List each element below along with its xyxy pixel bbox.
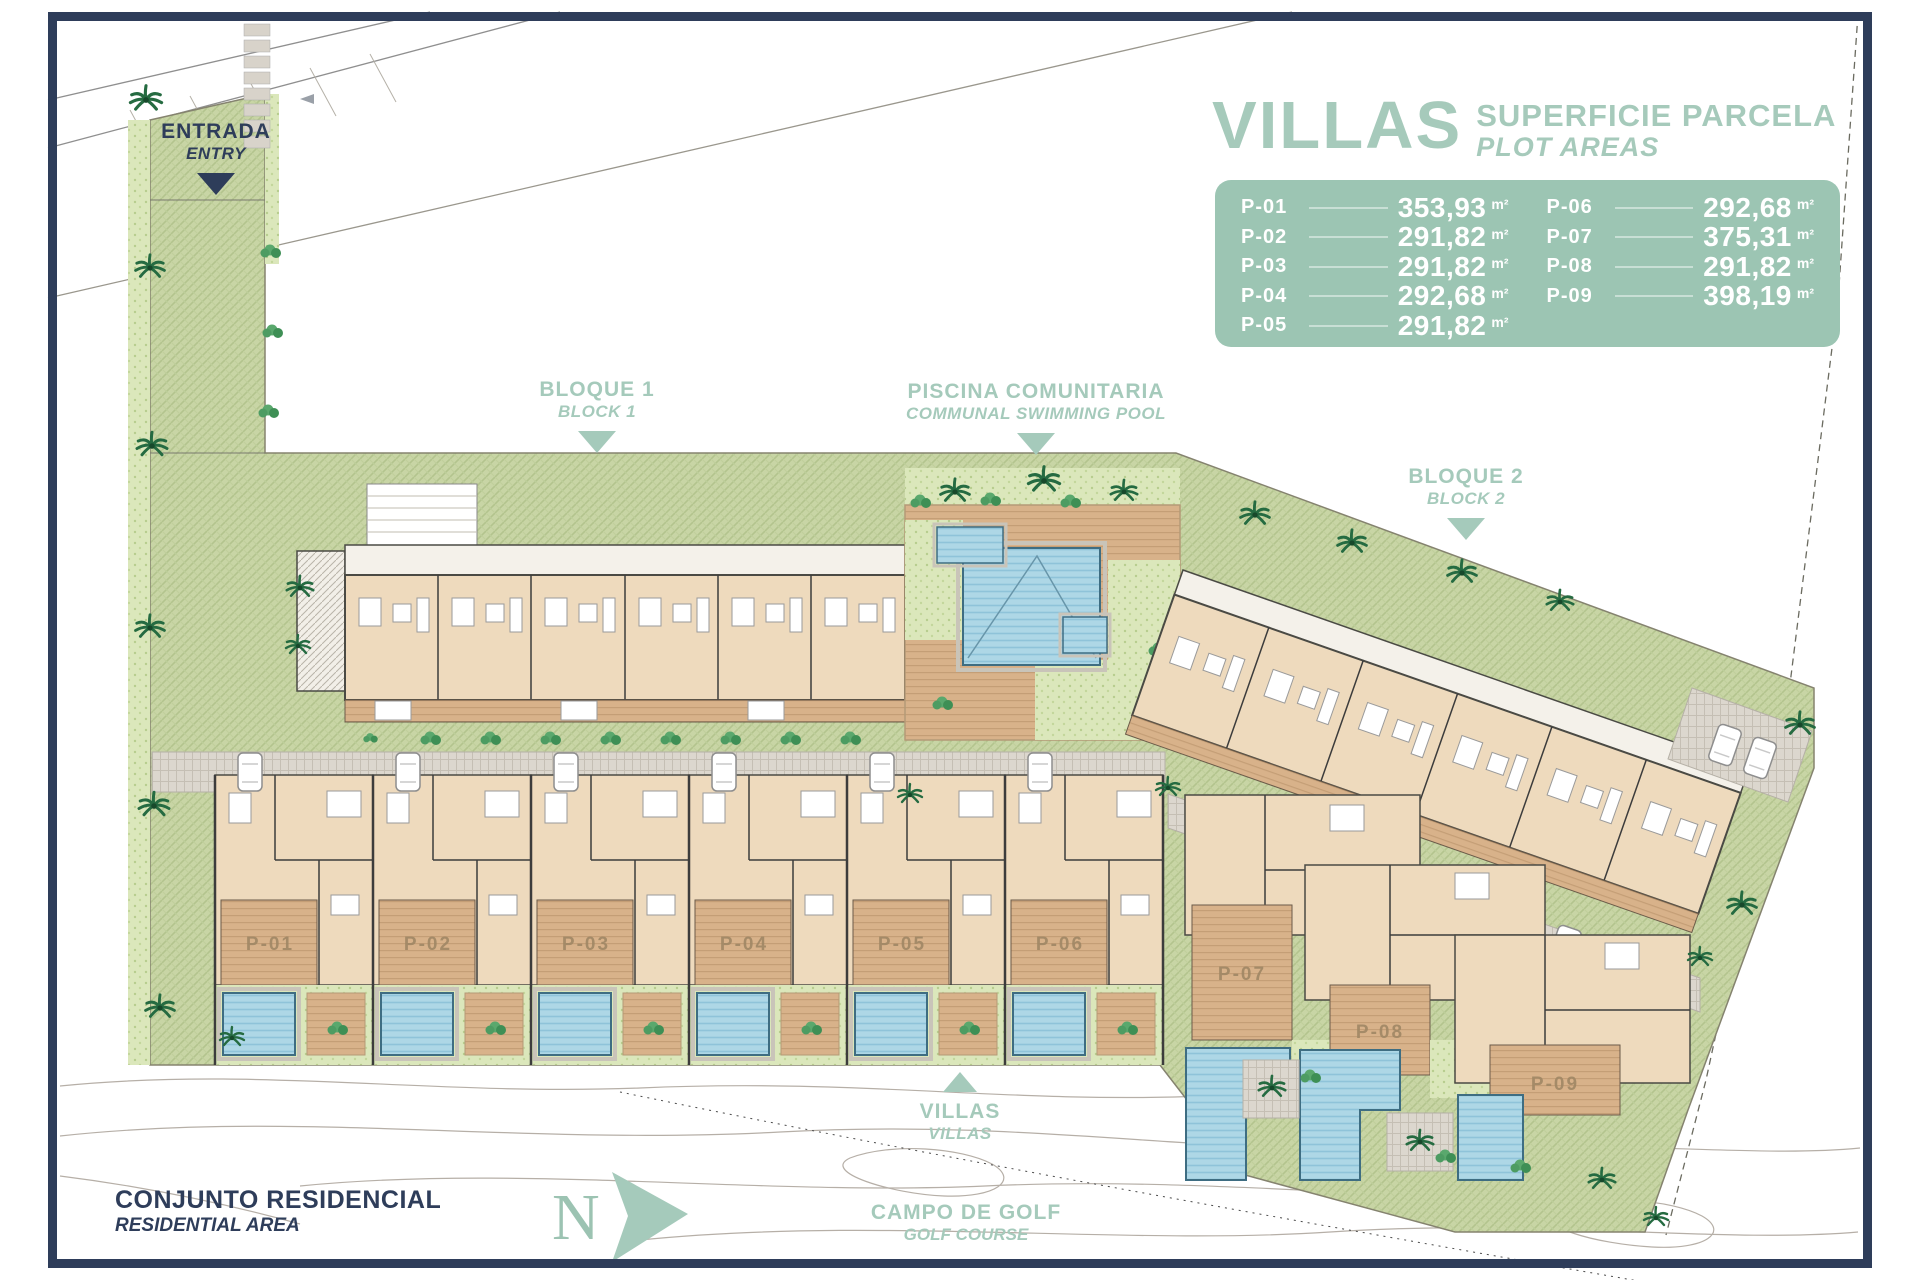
pool-callout: PISCINA COMUNITARIA COMMUNAL SWIMMING PO… [886, 380, 1186, 455]
plot-area-value: 291,82 [1398, 251, 1487, 283]
perimeter-road [48, 12, 560, 158]
plot-areas-column-1: P-01 353,93 m² P-02 291,82 m² P-03 291,8… [1241, 193, 1509, 337]
plot-area-value: 292,68 [1398, 280, 1487, 312]
villas-callout: VILLAS VILLAS [893, 1072, 1027, 1143]
plot-row: P-03 291,82 m² [1241, 252, 1509, 282]
plot-area-value: 291,82 [1398, 221, 1487, 253]
leader-line [1615, 266, 1694, 268]
plot-area-unit: m² [1491, 314, 1508, 330]
villa-unit [1005, 753, 1163, 1065]
plot-id: P-01 [1241, 196, 1299, 219]
entry-callout: ENTRADA ENTRY [150, 120, 282, 195]
golf-label-en: GOLF COURSE [866, 1225, 1066, 1245]
legend-subtitle-en: PLOT AREAS [1476, 133, 1836, 161]
villa-unit [847, 753, 1005, 1065]
plot-area-value: 375,31 [1703, 221, 1792, 253]
plot-area-unit: m² [1797, 226, 1814, 242]
plot-area-value: 292,68 [1703, 192, 1792, 224]
leader-line [1615, 207, 1694, 209]
plot-area-unit: m² [1491, 255, 1508, 271]
plot-label: P-07 [1218, 964, 1266, 985]
plot-row: P-01 353,93 m² [1241, 193, 1509, 223]
north-letter: N [552, 1180, 600, 1256]
entry-arrow-icon [197, 173, 235, 195]
leader-line [1309, 236, 1388, 238]
pool-arrow-icon [1017, 433, 1055, 455]
plot-area-unit: m² [1491, 196, 1508, 212]
plot-id: P-02 [1241, 226, 1299, 249]
plot-label: P-02 [404, 934, 452, 955]
leader-line [1309, 207, 1388, 209]
palm-tree-icon [130, 86, 161, 109]
plot-id: P-03 [1241, 255, 1299, 278]
villas-arrow-icon [943, 1072, 977, 1092]
block1-label-es: BLOQUE 1 [539, 378, 654, 402]
plot-id: P-09 [1547, 285, 1605, 308]
plot-area-value: 398,19 [1703, 280, 1792, 312]
villa-row [215, 753, 1163, 1065]
plot-label: P-05 [878, 934, 926, 955]
plot-row: P-06 292,68 m² [1547, 193, 1815, 223]
leader-line [1309, 295, 1388, 297]
pool-label-en: COMMUNAL SWIMMING POOL [906, 404, 1166, 423]
plot-id: P-07 [1547, 226, 1605, 249]
leader-line [1615, 236, 1694, 238]
plot-area-unit: m² [1491, 285, 1508, 301]
legend-subtitle-es: SUPERFICIE PARCELA [1476, 100, 1836, 133]
plot-id: P-04 [1241, 285, 1299, 308]
legend-title: VILLAS SUPERFICIE PARCELA PLOT AREAS [1212, 94, 1836, 161]
site-plan-page: P-01 P-02 P-03 P-04 P-05 P-06 P-07 P-08 … [0, 0, 1920, 1280]
plot-area-value: 353,93 [1398, 192, 1487, 224]
plot-label: P-08 [1356, 1022, 1404, 1043]
plot-row: P-07 375,31 m² [1547, 223, 1815, 253]
plot-area-unit: m² [1797, 255, 1814, 271]
plot-area-value: 291,82 [1398, 310, 1487, 342]
golf-label-es: CAMPO DE GOLF [866, 1200, 1066, 1225]
block1-label-en: BLOCK 1 [558, 402, 636, 421]
plot-label: P-01 [246, 934, 294, 955]
villa-unit [373, 753, 531, 1065]
plot-area-unit: m² [1491, 226, 1508, 242]
plot-area-unit: m² [1797, 285, 1814, 301]
plot-id: P-08 [1547, 255, 1605, 278]
leader-line [1309, 266, 1388, 268]
block2-label-es: BLOQUE 2 [1408, 465, 1523, 489]
legend-title-main: VILLAS [1212, 94, 1462, 158]
leader-line [1615, 295, 1694, 297]
residential-label-es: CONJUNTO RESIDENCIAL [115, 1186, 441, 1215]
plot-label: P-09 [1531, 1074, 1579, 1095]
plot-label: P-04 [720, 934, 768, 955]
plot-id: P-06 [1547, 196, 1605, 219]
plot-row: P-05 291,82 m² [1241, 311, 1509, 341]
block2-callout: BLOQUE 2 BLOCK 2 [1399, 465, 1533, 540]
plot-row: P-04 292,68 m² [1241, 282, 1509, 312]
plot-row: P-02 291,82 m² [1241, 223, 1509, 253]
entry-label-en: ENTRY [186, 144, 246, 163]
villas-label-es: VILLAS [920, 1100, 1001, 1124]
golf-course-label: CAMPO DE GOLF GOLF COURSE [866, 1200, 1066, 1246]
entry-label-es: ENTRADA [161, 120, 271, 144]
villas-label-en: VILLAS [928, 1124, 991, 1143]
residential-label-en: RESIDENTIAL AREA [115, 1215, 441, 1237]
villa-unit [689, 753, 847, 1065]
block2-label-en: BLOCK 2 [1427, 489, 1505, 508]
plot-id: P-05 [1241, 314, 1299, 337]
plot-areas-column-2: P-06 292,68 m² P-07 375,31 m² P-08 291,8… [1547, 193, 1815, 337]
plot-label: P-03 [562, 934, 610, 955]
villa-unit [531, 753, 689, 1065]
plot-row: P-09 398,19 m² [1547, 282, 1815, 312]
block1-arrow-icon [578, 431, 616, 453]
plot-areas-panel: P-01 353,93 m² P-02 291,82 m² P-03 291,8… [1215, 180, 1840, 347]
plot-area-value: 291,82 [1703, 251, 1792, 283]
block2-arrow-icon [1447, 518, 1485, 540]
block1-callout: BLOQUE 1 BLOCK 1 [530, 378, 664, 453]
pool-label-es: PISCINA COMUNITARIA [908, 380, 1165, 404]
plot-area-unit: m² [1797, 196, 1814, 212]
north-compass: N [552, 1178, 692, 1268]
residential-area-label: CONJUNTO RESIDENCIAL RESIDENTIAL AREA [115, 1186, 441, 1237]
leader-line [1309, 325, 1388, 327]
plot-label: P-06 [1036, 934, 1084, 955]
villa-unit [215, 753, 373, 1065]
plot-row: P-08 291,82 m² [1547, 252, 1815, 282]
